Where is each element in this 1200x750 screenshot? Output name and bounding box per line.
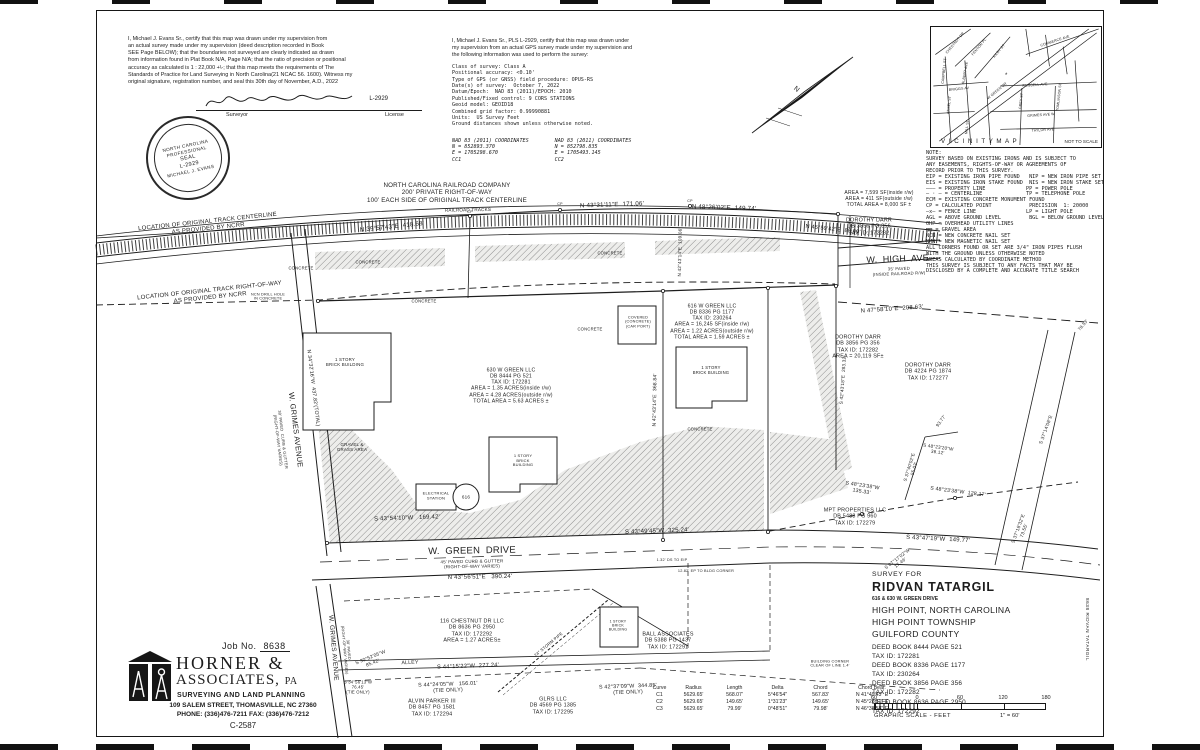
curve-table-cell: C3 (646, 706, 673, 713)
job-number-label: Job No. (222, 641, 257, 651)
curve-table-cell: 149.65' (800, 699, 841, 706)
gps-coordinates-cc2: NAD 83 (2011) COORDINATES N = 852798.835… (555, 138, 632, 163)
scale-number: 0 (915, 695, 918, 701)
curve-table-cell: 1°31'23" (755, 699, 800, 706)
vicinity-map: CHESTNUT DRFENTON PLKILBY STCAMPBELL STA… (930, 26, 1102, 148)
firm-phone-fax: PHONE: (336)476-7211 FAX: (336)476-7212 (106, 711, 380, 718)
scale-number: 60 (871, 695, 877, 701)
gps-survey-details: Class of survey: Class A Positional accu… (452, 64, 708, 128)
vicinity-map-title: V I C I N I T Y M A P (941, 138, 1018, 145)
surveyor-certification-text: I, Michael J. Evans Sr., certify that th… (128, 36, 444, 86)
scale-bar (874, 703, 1046, 710)
curve-table-cell: 5629.65' (673, 706, 714, 713)
signature-scribble (204, 92, 354, 110)
curve-table-cell: 149.65' (714, 699, 755, 706)
seal-inner-ring: NORTH CAROLINA PROFESSIONAL SEAL L-2929 … (148, 118, 229, 199)
firm-name-line2-text: ASSOCIATES, (176, 672, 280, 688)
curve-table-cell: 79.99' (714, 706, 755, 713)
firm-license-number: C-2587 (106, 721, 380, 730)
vicinity-not-to-scale-label: NOT TO SCALE (1065, 139, 1098, 144)
curve-table-cell: Delta (755, 685, 800, 692)
firm-name-line1: HORNER & (176, 653, 285, 674)
curve-table-cell: 568.07' (714, 692, 755, 699)
gps-certification-intro: I, Michael J. Evans Sr., PLS L-2929, cer… (452, 38, 708, 59)
surveyor-label: Surveyor (226, 112, 248, 118)
curve-table-cell: 5°46'54" (755, 692, 800, 699)
curve-table-header: CurveRadiusLengthDeltaChordChord Bear. (646, 685, 896, 692)
firm-address: 109 SALEM STREET, THOMASVILLE, NC 27360 (106, 702, 380, 709)
scale-ratio: 1" = 60' (1000, 713, 1019, 719)
firm-name-suffix: PA (285, 676, 298, 687)
deed-reference-line: TAX ID: 172281 (872, 652, 1098, 661)
curve-table-cell: Radius (673, 685, 714, 692)
scale-subdivision (875, 704, 918, 709)
curve-table-cell: Chord Bear. (841, 685, 903, 692)
curve-table-cell: Chord (800, 685, 841, 692)
deed-reference-line: DEED BOOK 8336 PAGE 1177 (872, 661, 1098, 670)
curve-table-cell: 0°48'51" (755, 706, 800, 713)
curve-table-cell: Length (714, 685, 755, 692)
job-number-row: Job No. 8638 (222, 641, 290, 651)
deed-reference-line: DEED BOOK 3856 PAGE 356 (872, 679, 1098, 688)
scale-caption: GRAPHIC SCALE - FEET (874, 713, 951, 719)
site-township: HIGH POINT TOWNSHIP (872, 617, 1098, 627)
license-label: License (385, 112, 404, 118)
surveyor-license-number: L-2929 (369, 96, 388, 102)
firm-name-line2: ASSOCIATES, PA (176, 672, 298, 689)
firm-tagline: SURVEYING AND LAND PLANNING (177, 692, 306, 699)
scale-tick (961, 704, 962, 709)
curve-table-cell: 5629.65' (673, 699, 714, 706)
site-city: HIGH POINT, NORTH CAROLINA (872, 605, 1098, 615)
site-county: GUILFORD COUNTY (872, 629, 1098, 639)
scale-numbers: 60060120180 (874, 695, 1046, 702)
curve-table-cell: C2 (646, 699, 673, 706)
graphic-scale: 60060120180 GRAPHIC SCALE - FEET 1" = 60… (872, 695, 1050, 725)
margin-vertical-text: 8638 RIDVAN TATARGIL (1085, 598, 1090, 661)
curve-table-cell: C1 (646, 692, 673, 699)
curve-table-row: C25629.65'149.65'1°31'23"149.65'N 45°28'… (646, 699, 896, 706)
curve-table-row: C35629.65'79.99'0°48'51"79.98'N 46°38'58… (646, 706, 896, 713)
curve-table-row: C15629.65'568.07'5°46'54"567.83'N 41°49'… (646, 692, 896, 699)
deed-reference-line: TAX ID: 230264 (872, 670, 1098, 679)
survey-for-label: SURVEY FOR (872, 571, 1098, 578)
signature-line (196, 110, 422, 111)
firm-logo-icon (128, 651, 172, 703)
site-address: 616 & 630 W. GREEN DRIVE (872, 596, 1098, 602)
scan-tick-marks-top (0, 0, 1200, 4)
legend-notes-block: NOTE: SURVEY BASED ON EXISTING IRONS AND… (926, 151, 1106, 275)
scale-number: 60 (957, 695, 963, 701)
scale-tick (1004, 704, 1005, 709)
curve-table-cell: 567.83' (800, 692, 841, 699)
site-location-marker: * (1005, 73, 1007, 79)
scale-number: 180 (1041, 695, 1050, 701)
gps-coordinates-cc1: NAD 83 (2011) COORDINATES N = 852893.370… (452, 138, 529, 163)
job-number-value: 8638 (260, 641, 290, 652)
client-name: RIDVAN TATARGIL (872, 580, 1098, 594)
curve-table-cell: 5629.65' (673, 692, 714, 699)
scale-number: 120 (998, 695, 1007, 701)
scan-tick-marks-bottom (0, 744, 1200, 750)
signature-block: L-2929 Surveyor License (196, 92, 422, 124)
gps-certification-block: I, Michael J. Evans Sr., PLS L-2929, cer… (452, 38, 708, 163)
curve-table-cell: 79.98' (800, 706, 841, 713)
curve-table-cell: Curve (646, 685, 673, 692)
curve-table: CurveRadiusLengthDeltaChordChord Bear.C1… (646, 685, 896, 713)
deed-reference-line: DEED BOOK 8444 PAGE 521 (872, 643, 1098, 652)
